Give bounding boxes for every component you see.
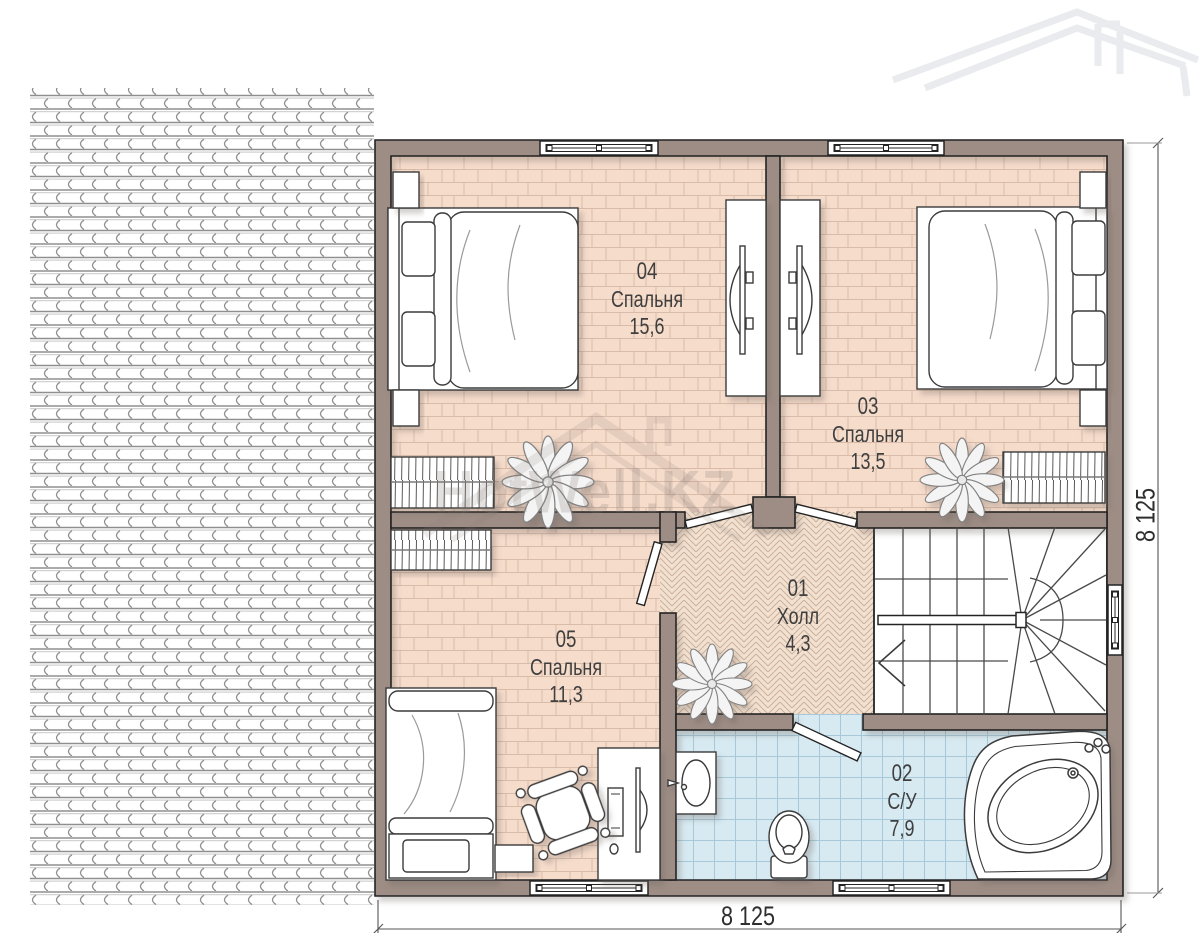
- window-bottom-05: [530, 881, 648, 895]
- window-right-stairs: [1108, 585, 1122, 655]
- single-bed-05: [386, 688, 496, 880]
- double-bed-03: [917, 207, 1107, 389]
- room-area: 15,6: [611, 313, 683, 340]
- room-name: Холл: [777, 603, 819, 630]
- room-number: 05: [530, 626, 602, 654]
- room-name: Спальня: [832, 421, 904, 448]
- toilet: [769, 811, 809, 878]
- dimension-bottom: 8 125: [721, 901, 775, 932]
- window-top-03: [828, 141, 944, 155]
- radiator-03: [1003, 452, 1105, 503]
- wall-bath-top-right: [863, 714, 1107, 730]
- double-bed-04: [388, 208, 578, 390]
- room-number: 02: [887, 760, 916, 788]
- room-label-02: 02 С/У 7,9: [887, 760, 916, 843]
- room-label-01: 01 Холл 4,3: [777, 575, 819, 658]
- bedside-box-05: [495, 845, 533, 872]
- wall-04-03: [766, 156, 780, 497]
- room-area: 4,3: [777, 630, 819, 657]
- room-name: С/У: [887, 788, 916, 815]
- room-label-05: 05 Спальня 11,3: [530, 626, 602, 709]
- room-name: Спальня: [611, 286, 683, 313]
- window-bottom-bath: [833, 881, 950, 895]
- room-area: 7,9: [887, 815, 916, 842]
- roof-tiles: [30, 88, 374, 905]
- room-number: 04: [611, 258, 683, 286]
- room-label-04: 04 Спальня 15,6: [611, 258, 683, 341]
- desk-05: [598, 748, 660, 880]
- tv-unit-right: [780, 200, 820, 396]
- room-name: Спальня: [530, 654, 602, 681]
- room-number: 03: [832, 393, 904, 421]
- wall-05-hall-b: [660, 613, 676, 880]
- bathtub: [964, 731, 1114, 879]
- room-number: 01: [777, 575, 819, 603]
- stairs-handrail: [878, 613, 1026, 628]
- room-area: 11,3: [530, 681, 602, 708]
- tv-unit-left: [726, 200, 766, 396]
- watermark-text: HotWell.KZ: [434, 458, 737, 527]
- window-top-04: [540, 141, 658, 155]
- dimension-right: 8 125: [1131, 488, 1162, 542]
- radiator-05: [391, 530, 491, 570]
- room-area: 13,5: [832, 448, 904, 475]
- floor-plan-page: 04 Спальня 15,6 03 Спальня 13,5 05 Спаль…: [0, 0, 1200, 933]
- room-label-03: 03 Спальня 13,5: [832, 393, 904, 476]
- house-silhouette-icon: [893, 12, 1198, 96]
